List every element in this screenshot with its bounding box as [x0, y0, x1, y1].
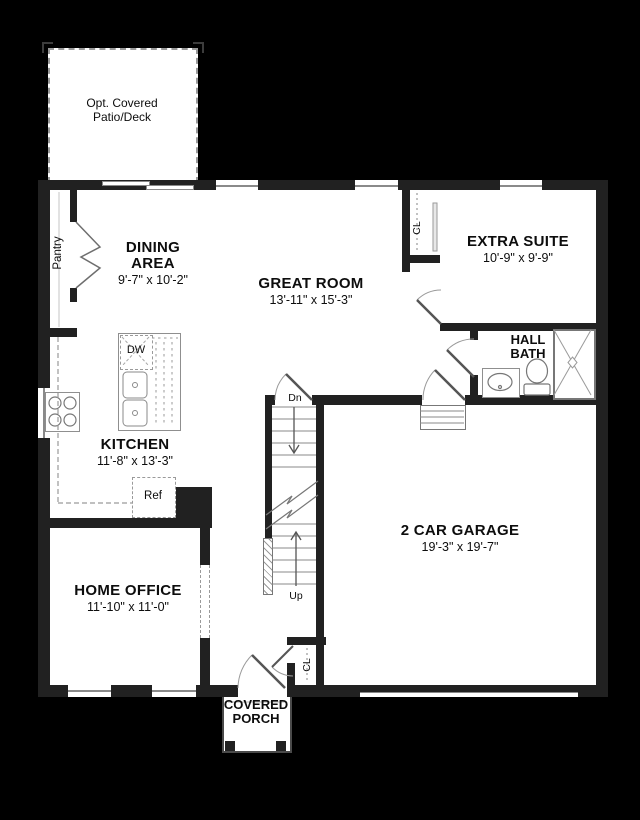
kitchen-label: KITCHEN 11'-8" x 13'-3" — [97, 437, 173, 469]
dining-label: DINING AREA 9'-7" x 10'-2" — [118, 240, 188, 288]
patio-label: Opt. Covered Patio/Deck — [86, 96, 157, 124]
entry-closet-label: CL — [301, 658, 313, 671]
hall-bath-line2: BATH — [510, 347, 545, 361]
wall-bath-west-upper — [470, 331, 478, 340]
garage-label: 2 CAR GARAGE 19'-3" x 19'-7" — [401, 523, 520, 555]
hall-bath-label: HALL BATH — [510, 333, 545, 361]
kitchen-dims: 11'-8" x 13'-3" — [97, 454, 173, 469]
wall-pantry-bottom — [38, 328, 77, 337]
wall-kitchen-stub — [173, 487, 212, 518]
garage-dims: 19'-3" x 19'-7" — [401, 540, 520, 555]
hall-bath-line1: HALL — [510, 333, 545, 347]
covered-porch-label: COVERED PORCH — [224, 698, 288, 726]
extra-suite-label: EXTRA SUITE 10'-9" x 9'-9" — [467, 234, 569, 266]
stairs-down-label: Dn — [288, 392, 301, 404]
stair-railing-hatch — [263, 538, 273, 595]
home-office-name: HOME OFFICE — [74, 583, 181, 599]
porch-post-left — [225, 741, 235, 751]
wall-pantry-right-lower — [70, 288, 77, 302]
wall-exterior-left — [38, 180, 50, 697]
patio-slider-panel-2 — [146, 185, 194, 190]
dining-name-line2: AREA — [118, 256, 188, 272]
stairs-up-label: Up — [289, 590, 302, 602]
wall-suite-closet-south — [402, 255, 440, 263]
window-dining — [216, 180, 258, 190]
garage-name: 2 CAR GARAGE — [401, 523, 520, 539]
window-great-room — [355, 180, 398, 190]
dishwasher-label: DW — [127, 344, 145, 356]
patio-corner-bracket-right — [193, 42, 204, 53]
garage-steps — [420, 405, 466, 430]
window-home-office-2 — [152, 685, 196, 697]
garage-door — [360, 692, 578, 697]
patio-corner-bracket-left — [42, 42, 53, 53]
home-office-label: HOME OFFICE 11'-10" x 11'-0" — [74, 583, 181, 615]
wall-home-office-right-upper — [200, 518, 210, 565]
front-door-opening — [238, 685, 287, 697]
wall-hall-south-a — [324, 395, 422, 405]
stove — [45, 392, 80, 432]
wall-bath-west-lower — [470, 375, 478, 395]
wall-entry-closet-left — [287, 663, 295, 697]
great-room-dims: 13'-11" x 15'-3" — [258, 293, 363, 308]
wall-garage-west — [316, 395, 324, 697]
porch-post-right — [276, 741, 286, 751]
wall-home-office-top — [40, 518, 212, 528]
patio-label-line1: Opt. Covered — [86, 96, 157, 110]
wall-stair-jamb-right — [312, 395, 324, 405]
wall-stair-west — [265, 395, 272, 538]
pantry-door-opening — [70, 222, 77, 288]
home-office-dims: 11'-10" x 11'-0" — [74, 600, 181, 615]
wall-exterior-right — [596, 180, 608, 697]
floor-plan: Opt. Covered Patio/Deck Pantry DINING AR… — [0, 0, 640, 820]
patio-label-line2: Patio/Deck — [86, 110, 157, 124]
covered-porch-line2: PORCH — [224, 712, 288, 726]
patio-slider-panel-1 — [102, 181, 150, 186]
pantry-label: Pantry — [52, 236, 64, 269]
window-extra-suite — [500, 180, 542, 190]
great-room-name: GREAT ROOM — [258, 276, 363, 292]
wall-stair-jamb-left — [265, 395, 275, 405]
dining-name-line1: DINING — [118, 240, 188, 256]
kitchen-name: KITCHEN — [97, 437, 173, 453]
wall-home-office-right-lower — [200, 638, 210, 697]
extra-suite-name: EXTRA SUITE — [467, 234, 569, 250]
refrigerator-label: Ref — [144, 490, 162, 502]
great-room-label: GREAT ROOM 13'-11" x 15'-3" — [258, 276, 363, 308]
dining-dims: 9'-7" x 10'-2" — [118, 273, 188, 288]
window-home-office-1 — [68, 685, 111, 697]
wall-pantry-right-upper — [70, 180, 77, 222]
bath-vanity — [482, 368, 520, 398]
home-office-cased-opening — [200, 565, 210, 638]
shower — [553, 329, 596, 400]
suite-closet-label: CL — [411, 221, 423, 234]
extra-suite-dims: 10'-9" x 9'-9" — [467, 251, 569, 266]
covered-porch-line1: COVERED — [224, 698, 288, 712]
